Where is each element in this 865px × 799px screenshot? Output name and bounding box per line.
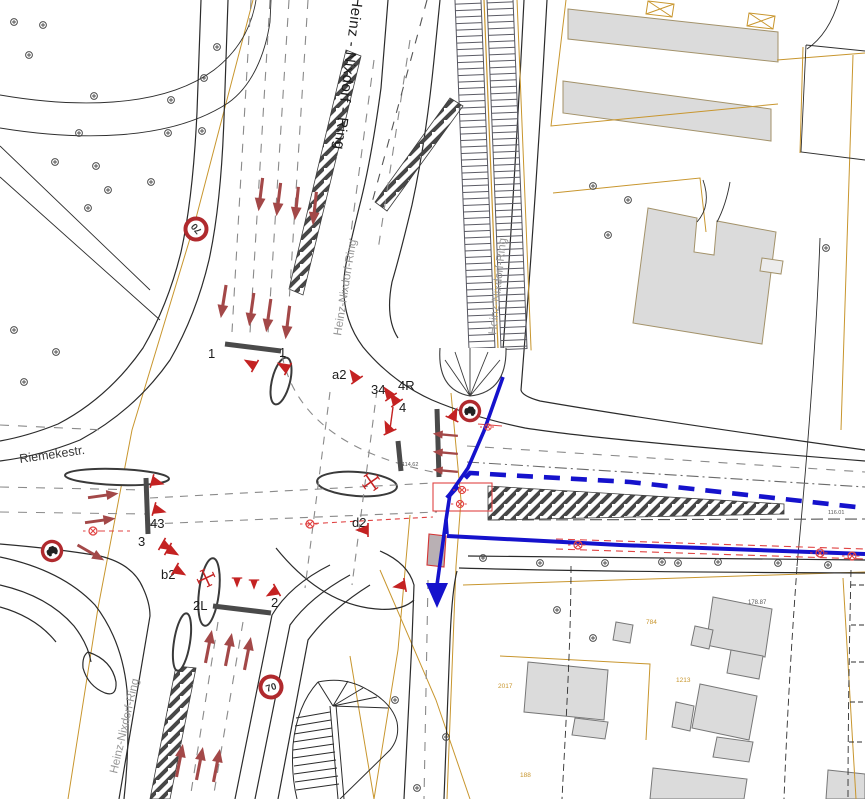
lane-arrow-icon <box>244 292 259 327</box>
street-label-heinz-nixdorf-ring-main: Heinz - Nixdorf - Ring <box>330 0 366 151</box>
signal-label: 43 <box>150 516 164 531</box>
tree-icon <box>392 697 399 704</box>
building <box>706 597 772 657</box>
tree-icon <box>11 327 18 334</box>
parcel-number: 784 <box>646 619 657 626</box>
traffic-signal-icon <box>344 365 363 384</box>
detector-icon <box>300 520 320 528</box>
no-motor-vehicles-sign-east <box>459 400 480 421</box>
building <box>563 81 771 141</box>
building-annex <box>572 718 608 739</box>
traffic-signal-icon <box>391 578 406 594</box>
tree-icon <box>414 785 421 792</box>
trees-layer <box>11 19 832 792</box>
tree-icon <box>602 560 609 567</box>
signal-label: 3 <box>138 534 145 549</box>
tree-icon <box>199 128 206 135</box>
lane-arrow-icon <box>87 488 119 502</box>
building <box>613 622 633 643</box>
detector-icon <box>451 500 469 507</box>
tree-icon <box>148 179 155 186</box>
lane-arrow-icon <box>84 513 116 527</box>
parcel-number: 188 <box>520 772 531 779</box>
tree-icon <box>40 22 47 29</box>
tree-icon <box>53 349 60 356</box>
tree-icon <box>11 19 18 26</box>
no-motor-vehicles-sign-west <box>40 539 64 563</box>
tree-icon <box>590 183 597 190</box>
tree-icon <box>91 93 98 100</box>
tree-icon <box>554 607 561 614</box>
tree-icon <box>52 159 59 166</box>
traffic-signal-icon <box>378 417 396 435</box>
plan-canvas: Heinz - Nixdorf - Ring Heinz-Nixdorf-Rin… <box>0 0 865 799</box>
tree-icon <box>26 52 33 59</box>
lane-arrow-icon <box>191 746 208 781</box>
street-label-riemekestr: Riemekestr. <box>18 443 85 466</box>
building-annex <box>672 702 694 731</box>
tree-icon <box>825 562 832 569</box>
tree-icon <box>590 635 597 642</box>
tree-icon <box>93 163 100 170</box>
parcel-number: 2017 <box>498 683 513 690</box>
building-annex <box>760 258 783 274</box>
signal-label: 2L <box>193 598 207 613</box>
lane-arrow-icon <box>253 177 268 212</box>
buildings-layer <box>524 9 865 799</box>
route-arrow-icon <box>426 583 448 608</box>
traffic-signal-plan: Heinz - Nixdorf - Ring Heinz-Nixdorf-Rin… <box>0 0 865 799</box>
speed-limit-sign-south: 70 <box>258 674 284 700</box>
lane-arrow-icon <box>289 186 303 221</box>
stop-lines <box>146 344 439 613</box>
street-label-heinz-nixdorf-ring-north: Heinz-Nixdorf-Ring <box>332 239 359 337</box>
parcel-number: 1213 <box>676 677 691 684</box>
traffic-signal-icon <box>249 580 260 590</box>
lane-arrow-icon <box>220 632 237 667</box>
tree-icon <box>168 97 175 104</box>
signals-layer <box>150 353 464 602</box>
lane-arrow-icon <box>208 748 225 783</box>
underpass-stairs <box>293 680 398 799</box>
tree-icon <box>165 130 172 137</box>
tree-icon <box>625 197 632 204</box>
signal-label: 34 <box>371 382 385 397</box>
median-band-cap <box>440 348 506 396</box>
signal-label: b2 <box>161 567 175 582</box>
tree-icon <box>105 187 112 194</box>
elevation-label: 178.87 <box>748 600 767 606</box>
lane-arrow-icon <box>239 636 256 671</box>
traffic-signal-icon <box>232 578 243 588</box>
route-line-solid-east <box>447 536 865 554</box>
tree-icon <box>21 379 28 386</box>
lane-arrow-icon <box>280 305 295 340</box>
detectors-layer <box>83 424 862 560</box>
tree-icon <box>775 560 782 567</box>
tree-icon <box>214 44 221 51</box>
lane-arrow-icon <box>215 284 231 319</box>
building-annex <box>713 737 753 762</box>
building <box>568 9 778 62</box>
tree-icon <box>715 559 722 566</box>
signal-label: 4 <box>399 400 406 415</box>
speed-limit-sign-north: 70 <box>181 214 211 244</box>
signal-label: a2 <box>332 367 346 382</box>
tree-icon <box>537 560 544 567</box>
building <box>692 684 757 740</box>
traffic-signal-icon <box>240 353 258 372</box>
tree-icon <box>659 559 666 566</box>
signal-label: 1 <box>208 346 215 361</box>
building <box>633 208 776 344</box>
elevation-label: 116.01 <box>828 510 844 516</box>
building-annex <box>691 626 713 649</box>
elevation-label: 114.62 <box>402 462 418 468</box>
signal-label: 4R <box>398 378 415 393</box>
building <box>524 662 608 720</box>
tree-icon <box>605 232 612 239</box>
lane-arrow-icon <box>261 298 276 333</box>
building <box>826 770 865 799</box>
building <box>650 768 747 799</box>
tree-icon <box>823 245 830 252</box>
tree-icon <box>85 205 92 212</box>
lane-arrow-icon <box>271 182 286 217</box>
signal-label: 2 <box>271 595 278 610</box>
signal-label: 1 <box>279 345 286 360</box>
tree-icon <box>675 560 682 567</box>
detector-icon <box>83 527 103 535</box>
